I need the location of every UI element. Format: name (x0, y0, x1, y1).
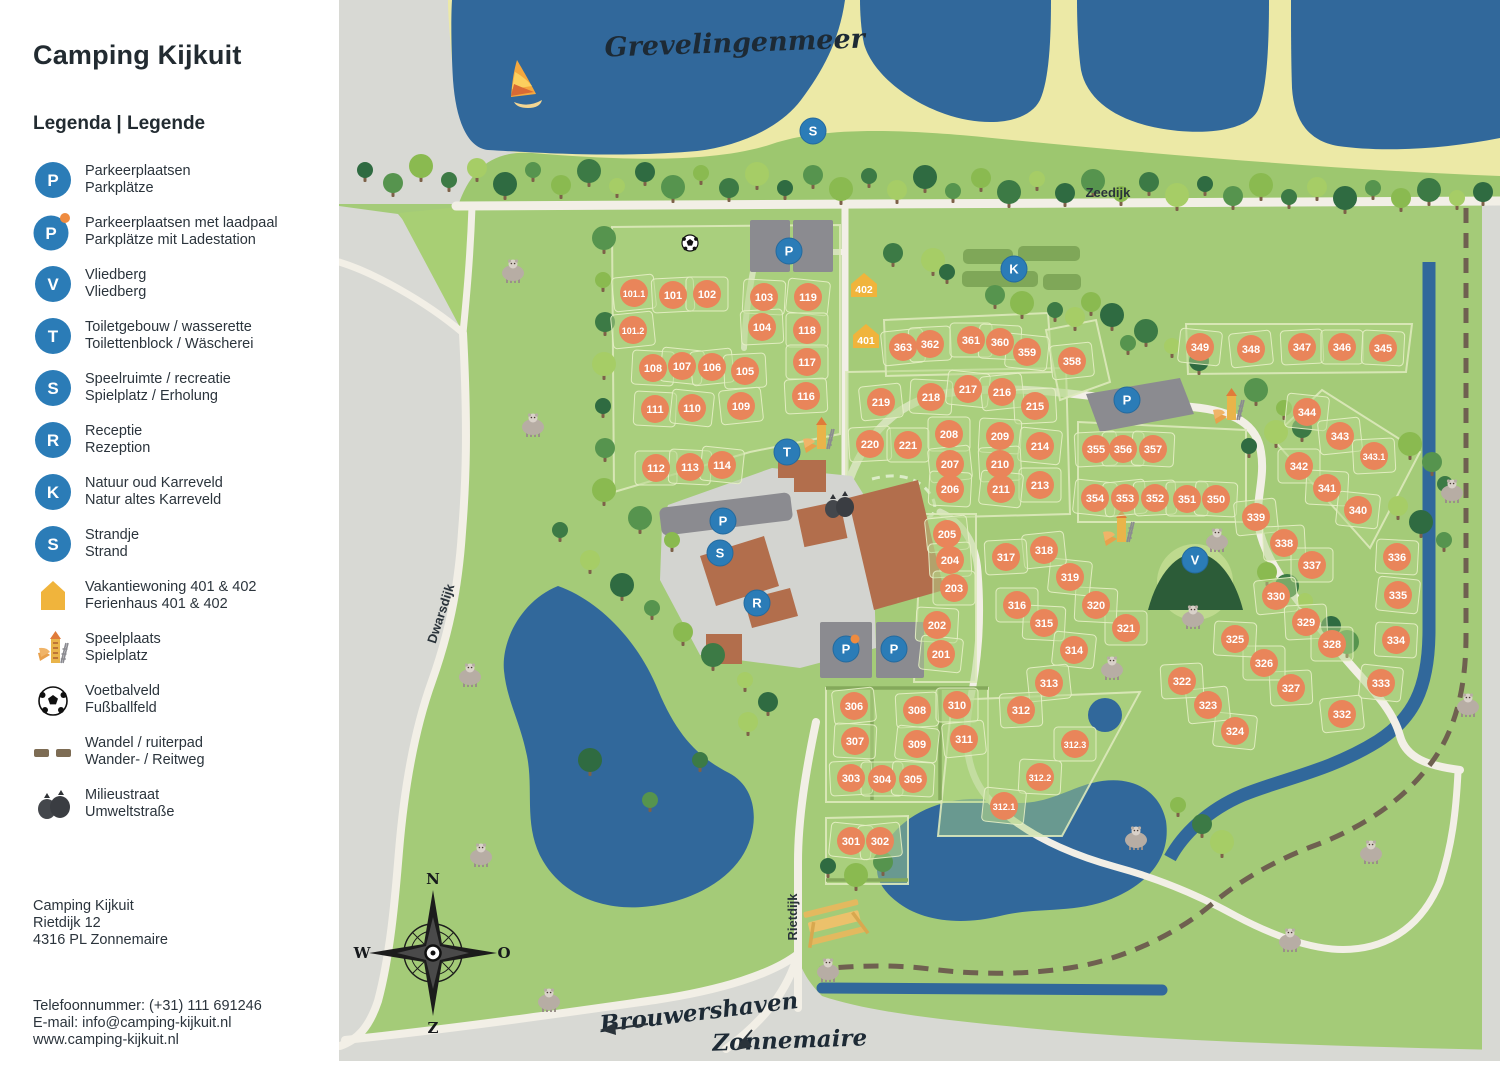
svg-text:321: 321 (1117, 623, 1135, 635)
legend-item-label: Toiletgebouw / wasseretteToilettenblock … (85, 319, 253, 351)
plot-marker-333[interactable]: 333 (1367, 669, 1395, 697)
plot-marker-334[interactable]: 334 (1382, 626, 1410, 654)
svg-text:353: 353 (1116, 493, 1134, 505)
plot-marker-343.1[interactable]: 343.1 (1360, 442, 1388, 470)
svg-text:R: R (752, 596, 762, 611)
plot-marker-338[interactable]: 338 (1270, 529, 1298, 557)
plot-marker-336[interactable]: 336 (1383, 543, 1411, 571)
svg-text:312.3: 312.3 (1064, 740, 1087, 750)
legend-item-label: Parkeerplaatsen met laadpaalParkplätze m… (85, 215, 278, 247)
plot-marker-102[interactable]: 102 (693, 280, 721, 308)
plot-marker-360[interactable]: 360 (986, 328, 1014, 356)
svg-text:S: S (716, 546, 725, 561)
svg-text:315: 315 (1035, 618, 1053, 630)
legend-list: PParkeerplaatsenParkplätzePParkeerplaats… (33, 161, 329, 822)
svg-text:308: 308 (908, 705, 926, 717)
plot-marker-116[interactable]: 116 (792, 382, 820, 410)
svg-text:111: 111 (646, 404, 663, 416)
parking-icon: P (33, 161, 73, 199)
svg-text:323: 323 (1199, 700, 1217, 712)
plot-marker-352[interactable]: 352 (1141, 484, 1169, 512)
svg-text:348: 348 (1242, 344, 1260, 356)
address-block: Camping Kijkuit Rietdijk 12 4316 PL Zonn… (33, 898, 329, 949)
svg-text:312.1: 312.1 (993, 802, 1016, 812)
plot-marker-107[interactable]: 107 (668, 352, 696, 380)
svg-text:206: 206 (941, 484, 959, 496)
badge-karreveld[interactable]: K (1001, 256, 1027, 282)
svg-text:104: 104 (753, 322, 772, 334)
svg-text:P: P (785, 244, 794, 259)
svg-text:312: 312 (1012, 705, 1030, 717)
svg-text:354: 354 (1086, 493, 1105, 505)
svg-text:102: 102 (698, 289, 716, 301)
legend-item-recreation: SSpeelruimte / recreatieSpielplatz / Erh… (33, 369, 329, 406)
page-title: Camping Kijkuit (33, 40, 329, 71)
plot-marker-348[interactable]: 348 (1237, 335, 1265, 363)
svg-text:303: 303 (842, 773, 860, 785)
svg-text:107: 107 (673, 361, 691, 373)
badge-vliedberg[interactable]: V (1182, 547, 1208, 573)
svg-text:103: 103 (755, 292, 773, 304)
plot-marker-302[interactable]: 302 (866, 827, 894, 855)
plot-marker-332[interactable]: 332 (1328, 700, 1356, 728)
beach-icon: S (33, 525, 73, 563)
svg-text:105: 105 (736, 366, 754, 378)
svg-text:343: 343 (1331, 431, 1349, 443)
plot-marker-221[interactable]: 221 (894, 431, 922, 459)
plot-marker-323[interactable]: 323 (1194, 691, 1222, 719)
svg-text:320: 320 (1087, 600, 1105, 612)
plot-marker-119[interactable]: 119 (794, 283, 822, 311)
svg-text:219: 219 (872, 397, 890, 409)
badge-toilets[interactable]: T (774, 439, 800, 465)
plot-marker-356[interactable]: 356 (1109, 435, 1137, 463)
legend-item-beach: SStrandjeStrand (33, 525, 329, 562)
compass-east: O (497, 944, 510, 962)
plot-marker-307[interactable]: 307 (841, 727, 869, 755)
svg-text:322: 322 (1173, 676, 1191, 688)
svg-text:359: 359 (1018, 347, 1036, 359)
plot-marker-342[interactable]: 342 (1285, 452, 1313, 480)
plot-marker-204[interactable]: 204 (936, 546, 964, 574)
address-line: Camping Kijkuit (33, 898, 329, 915)
svg-text:114: 114 (713, 460, 732, 472)
svg-text:P: P (842, 642, 851, 657)
plot-marker-201[interactable]: 201 (927, 640, 955, 668)
legend-item-bridle-path: Wandel / ruiterpadWander- / Reitweg (33, 733, 329, 770)
svg-text:318: 318 (1035, 545, 1053, 557)
address-line: 4316 PL Zonnemaire (33, 932, 329, 949)
plot-marker-113[interactable]: 113 (676, 453, 704, 481)
svg-text:343.1: 343.1 (1363, 452, 1386, 462)
soccer-ball-icon (682, 235, 698, 251)
plot-marker-335[interactable]: 335 (1384, 581, 1412, 609)
plot-marker-357[interactable]: 357 (1139, 435, 1167, 463)
svg-text:213: 213 (1031, 480, 1049, 492)
svg-text:210: 210 (991, 459, 1009, 471)
legend-item-toilets: TToiletgebouw / wasseretteToilettenblock… (33, 317, 329, 354)
plot-marker-306[interactable]: 306 (840, 692, 868, 720)
plot-marker-207[interactable]: 207 (936, 450, 964, 478)
svg-text:204: 204 (941, 555, 960, 567)
svg-text:355: 355 (1087, 444, 1105, 456)
svg-text:205: 205 (938, 529, 956, 541)
plot-marker-203[interactable]: 203 (940, 574, 968, 602)
svg-text:316: 316 (1008, 600, 1026, 612)
plot-marker-361[interactable]: 361 (957, 326, 985, 354)
legend-item-label: Speelruimte / recreatieSpielplatz / Erho… (85, 371, 231, 403)
plot-marker-304[interactable]: 304 (868, 765, 896, 793)
svg-text:363: 363 (894, 342, 912, 354)
svg-text:208: 208 (940, 429, 958, 441)
plot-marker-354[interactable]: 354 (1081, 484, 1109, 512)
plot-marker-101.1[interactable]: 101.1 (620, 279, 648, 307)
plot-marker-337[interactable]: 337 (1298, 551, 1326, 579)
plot-marker-209[interactable]: 209 (986, 422, 1014, 450)
plot-marker-205[interactable]: 205 (933, 520, 961, 548)
plot-marker-106[interactable]: 106 (698, 353, 726, 381)
svg-text:K: K (1009, 262, 1019, 277)
svg-text:311: 311 (955, 734, 973, 746)
plot-marker-101.2[interactable]: 101.2 (619, 316, 647, 344)
plot-marker-313[interactable]: 313 (1035, 669, 1063, 697)
svg-text:330: 330 (1267, 591, 1285, 603)
plot-marker-215[interactable]: 215 (1021, 392, 1049, 420)
plot-marker-312.3[interactable]: 312.3 (1061, 730, 1089, 758)
plot-marker-308[interactable]: 308 (903, 696, 931, 724)
plot-marker-314[interactable]: 314 (1060, 636, 1088, 664)
svg-text:207: 207 (941, 459, 959, 471)
legend-item-label: Wandel / ruiterpadWander- / Reitweg (85, 735, 205, 767)
plot-marker-206[interactable]: 206 (936, 475, 964, 503)
svg-text:117: 117 (798, 357, 816, 369)
svg-text:V: V (1191, 553, 1200, 568)
svg-text:357: 357 (1144, 444, 1162, 456)
svg-text:S: S (809, 124, 818, 139)
legend-item-parking-charging: PParkeerplaatsen met laadpaalParkplätze … (33, 213, 329, 250)
svg-text:221: 221 (899, 440, 917, 452)
plot-marker-305[interactable]: 305 (899, 765, 927, 793)
parking-charging-icon: P (33, 213, 73, 251)
plot-marker-344[interactable]: 344 (1293, 398, 1321, 426)
football-field-icon (33, 681, 73, 719)
plot-marker-213[interactable]: 213 (1026, 471, 1054, 499)
svg-text:356: 356 (1114, 444, 1132, 456)
legend-item-holiday-home: Vakantiewoning 401 & 402Ferienhaus 401 &… (33, 577, 329, 614)
svg-text:106: 106 (703, 362, 721, 374)
bridle-path-icon (33, 733, 73, 771)
karreveld-icon: K (33, 473, 73, 511)
legend-item-label: VoetbalveldFußballfeld (85, 683, 160, 715)
address-line: Rietdijk 12 (33, 915, 329, 932)
svg-text:339: 339 (1247, 512, 1265, 524)
svg-text:P: P (890, 642, 899, 657)
svg-text:110: 110 (683, 403, 701, 415)
plot-marker-353[interactable]: 353 (1111, 484, 1139, 512)
svg-text:346: 346 (1333, 342, 1351, 354)
plot-marker-108[interactable]: 108 (639, 354, 667, 382)
plot-marker-359[interactable]: 359 (1013, 338, 1041, 366)
svg-text:215: 215 (1026, 401, 1044, 413)
website-line: www.camping-kijkuit.nl (33, 1032, 329, 1049)
plot-marker-329[interactable]: 329 (1292, 608, 1320, 636)
legend-sidebar: Camping Kijkuit Legenda | Legende PParke… (0, 0, 339, 1061)
svg-text:R: R (47, 431, 59, 450)
plot-marker-325[interactable]: 325 (1221, 625, 1249, 653)
svg-text:306: 306 (845, 701, 863, 713)
recreation-icon: S (33, 369, 73, 407)
svg-text:101.1: 101.1 (623, 289, 646, 299)
svg-text:P: P (719, 514, 728, 529)
plot-marker-210[interactable]: 210 (986, 450, 1014, 478)
plot-marker-339[interactable]: 339 (1242, 503, 1270, 531)
plot-marker-349[interactable]: 349 (1186, 333, 1214, 361)
plot-marker-327[interactable]: 327 (1277, 674, 1305, 702)
svg-text:113: 113 (681, 462, 699, 474)
plot-marker-114[interactable]: 114 (708, 451, 736, 479)
plot-marker-109[interactable]: 109 (727, 392, 755, 420)
svg-text:337: 337 (1303, 560, 1321, 572)
svg-text:342: 342 (1290, 461, 1308, 473)
plot-marker-330[interactable]: 330 (1262, 582, 1290, 610)
legend-item-label: MilieustraatUmweltstraße (85, 787, 174, 819)
badge-parking-east[interactable]: P (1114, 387, 1140, 413)
svg-text:334: 334 (1387, 635, 1406, 647)
svg-text:218: 218 (922, 392, 940, 404)
plot-marker-324[interactable]: 324 (1221, 717, 1249, 745)
plot-marker-217[interactable]: 217 (954, 375, 982, 403)
plot-marker-208[interactable]: 208 (935, 420, 963, 448)
compass-west: W (353, 944, 372, 962)
legend-item-label: SpeelplaatsSpielplatz (85, 631, 161, 663)
legend-item-playground: SpeelplaatsSpielplatz (33, 629, 329, 666)
svg-text:119: 119 (799, 292, 817, 304)
camp-map: 101.1101102103119101.2104118108107106105… (339, 0, 1500, 1061)
plot-marker-321[interactable]: 321 (1112, 614, 1140, 642)
playground-icon (33, 629, 73, 667)
svg-text:341: 341 (1318, 483, 1336, 495)
label-zonnemaire: Zonnemaire (711, 1024, 868, 1056)
badge-parking-south[interactable]: P (881, 636, 907, 662)
plot-marker-315[interactable]: 315 (1030, 609, 1058, 637)
legend-item-football-field: VoetbalveldFußballfeld (33, 681, 329, 718)
svg-text:338: 338 (1275, 538, 1293, 550)
legend-item-label: Vakantiewoning 401 & 402Ferienhaus 401 &… (85, 579, 256, 611)
svg-text:317: 317 (997, 552, 1015, 564)
legend-item-label: VliedbergVliedberg (85, 267, 146, 299)
svg-text:P: P (45, 224, 56, 243)
svg-text:358: 358 (1063, 356, 1081, 368)
legend-title: Legenda | Legende (33, 113, 329, 135)
plot-marker-317[interactable]: 317 (992, 543, 1020, 571)
svg-text:325: 325 (1226, 634, 1244, 646)
plot-marker-351[interactable]: 351 (1173, 485, 1201, 513)
legend-item-reception: RReceptieRezeption (33, 421, 329, 458)
svg-text:209: 209 (991, 431, 1009, 443)
svg-text:333: 333 (1372, 678, 1390, 690)
plot-marker-312.1[interactable]: 312.1 (990, 792, 1018, 820)
svg-text:352: 352 (1146, 493, 1164, 505)
badge-parking-north[interactable]: P (776, 238, 802, 264)
svg-text:216: 216 (993, 387, 1011, 399)
plot-marker-355[interactable]: 355 (1082, 435, 1110, 463)
plot-marker-326[interactable]: 326 (1250, 649, 1278, 677)
legend-item-waste-street: MilieustraatUmweltstraße (33, 785, 329, 822)
holiday-home-icon (33, 577, 73, 615)
svg-text:101.2: 101.2 (622, 326, 645, 336)
plot-marker-101[interactable]: 101 (659, 281, 687, 309)
svg-text:326: 326 (1255, 658, 1273, 670)
plot-marker-316[interactable]: 316 (1003, 591, 1031, 619)
svg-text:S: S (47, 379, 58, 398)
svg-text:108: 108 (644, 363, 662, 375)
badge-beach[interactable]: S (800, 118, 826, 144)
svg-text:351: 351 (1178, 494, 1196, 506)
plot-marker-319[interactable]: 319 (1056, 563, 1084, 591)
plot-marker-117[interactable]: 117 (793, 348, 821, 376)
svg-text:203: 203 (945, 583, 963, 595)
label-zeedijk: Zeedijk (1086, 185, 1132, 200)
plot-marker-104[interactable]: 104 (748, 313, 776, 341)
vliedberg-icon: V (33, 265, 73, 303)
svg-text:P: P (1123, 393, 1132, 408)
svg-text:309: 309 (908, 739, 926, 751)
svg-text:360: 360 (991, 337, 1009, 349)
svg-text:310: 310 (948, 700, 966, 712)
plot-marker-220[interactable]: 220 (856, 430, 884, 458)
compass-north: N (426, 870, 440, 888)
badge-reception[interactable]: R (744, 590, 770, 616)
svg-text:402: 402 (855, 284, 873, 296)
legend-item-label: ParkeerplaatsenParkplätze (85, 163, 191, 195)
plot-marker-110[interactable]: 110 (678, 394, 706, 422)
svg-text:362: 362 (921, 339, 939, 351)
plot-marker-219[interactable]: 219 (867, 388, 895, 416)
plot-marker-362[interactable]: 362 (916, 330, 944, 358)
svg-text:116: 116 (797, 391, 815, 403)
badge-parking-plaza[interactable]: P (710, 508, 736, 534)
plot-marker-343[interactable]: 343 (1326, 422, 1354, 450)
reception-icon: R (33, 421, 73, 459)
plot-marker-211[interactable]: 211 (987, 475, 1015, 503)
svg-text:314: 314 (1065, 645, 1084, 657)
waste-street-icon (33, 785, 73, 823)
svg-text:328: 328 (1323, 639, 1341, 651)
svg-text:332: 332 (1333, 709, 1351, 721)
svg-text:214: 214 (1031, 441, 1050, 453)
svg-text:101: 101 (664, 290, 682, 302)
svg-text:344: 344 (1298, 407, 1317, 419)
svg-text:302: 302 (871, 836, 889, 848)
svg-text:202: 202 (928, 620, 946, 632)
svg-text:301: 301 (842, 836, 860, 848)
svg-text:335: 335 (1389, 590, 1407, 602)
svg-text:327: 327 (1282, 683, 1300, 695)
plot-marker-341[interactable]: 341 (1313, 474, 1341, 502)
plot-marker-312[interactable]: 312 (1007, 696, 1035, 724)
plot-marker-103[interactable]: 103 (750, 283, 778, 311)
svg-text:T: T (783, 445, 791, 460)
plot-marker-216[interactable]: 216 (988, 378, 1016, 406)
plot-marker-111[interactable]: 111 (641, 395, 669, 423)
plot-marker-310[interactable]: 310 (943, 691, 971, 719)
svg-text:312.2: 312.2 (1029, 773, 1052, 783)
plot-marker-218[interactable]: 218 (917, 383, 945, 411)
svg-text:304: 304 (873, 774, 892, 786)
plot-marker-358[interactable]: 358 (1058, 347, 1086, 375)
plot-marker-328[interactable]: 328 (1318, 630, 1346, 658)
plot-marker-347[interactable]: 347 (1288, 333, 1316, 361)
svg-text:211: 211 (992, 484, 1010, 496)
svg-text:347: 347 (1293, 342, 1311, 354)
plot-marker-309[interactable]: 309 (903, 730, 931, 758)
svg-text:201: 201 (932, 649, 950, 661)
legend-item-parking: PParkeerplaatsenParkplätze (33, 161, 329, 198)
svg-text:361: 361 (962, 335, 980, 347)
email-line: E-mail: info@camping-kijkuit.nl (33, 1015, 329, 1032)
plot-marker-301[interactable]: 301 (837, 827, 865, 855)
plot-marker-318[interactable]: 318 (1030, 536, 1058, 564)
svg-text:350: 350 (1207, 494, 1225, 506)
svg-text:S: S (47, 535, 58, 554)
plot-marker-322[interactable]: 322 (1168, 667, 1196, 695)
svg-text:P: P (47, 171, 58, 190)
toilets-icon: T (33, 317, 73, 355)
plot-marker-345[interactable]: 345 (1369, 334, 1397, 362)
plot-marker-350[interactable]: 350 (1202, 485, 1230, 513)
plot-marker-340[interactable]: 340 (1344, 496, 1372, 524)
svg-text:109: 109 (732, 401, 750, 413)
plot-marker-363[interactable]: 363 (889, 333, 917, 361)
svg-text:T: T (48, 327, 59, 346)
plot-marker-312.2[interactable]: 312.2 (1026, 763, 1054, 791)
svg-text:336: 336 (1388, 552, 1406, 564)
plot-marker-202[interactable]: 202 (923, 611, 951, 639)
label-rietdijk: Rietdijk (785, 893, 800, 941)
plot-marker-320[interactable]: 320 (1082, 591, 1110, 619)
plot-marker-105[interactable]: 105 (731, 357, 759, 385)
svg-text:401: 401 (857, 335, 875, 347)
svg-text:319: 319 (1061, 572, 1079, 584)
svg-text:K: K (47, 483, 60, 502)
svg-text:313: 313 (1040, 678, 1058, 690)
svg-text:118: 118 (798, 325, 816, 337)
legend-item-vliedberg: VVliedbergVliedberg (33, 265, 329, 302)
legend-item-label: ReceptieRezeption (85, 423, 150, 455)
plot-marker-303[interactable]: 303 (837, 764, 865, 792)
svg-text:349: 349 (1191, 342, 1209, 354)
plot-marker-112[interactable]: 112 (642, 454, 670, 482)
legend-item-label: StrandjeStrand (85, 527, 139, 559)
compass-south: Z (428, 1019, 439, 1037)
svg-text:329: 329 (1297, 617, 1315, 629)
svg-text:112: 112 (647, 463, 665, 475)
phone-line: Telefoonnummer: (+31) 111 691246 (33, 998, 329, 1015)
svg-text:340: 340 (1349, 505, 1367, 517)
plot-marker-346[interactable]: 346 (1328, 333, 1356, 361)
plot-marker-214[interactable]: 214 (1026, 432, 1054, 460)
svg-text:220: 220 (861, 439, 879, 451)
badge-recreation[interactable]: S (707, 540, 733, 566)
svg-text:307: 307 (846, 736, 864, 748)
legend-item-label: Natuur oud KarreveldNatur altes Karrevel… (85, 475, 223, 507)
svg-text:V: V (47, 275, 59, 294)
plot-marker-118[interactable]: 118 (793, 316, 821, 344)
plot-marker-311[interactable]: 311 (950, 725, 978, 753)
svg-text:305: 305 (904, 774, 922, 786)
legend-item-karreveld: KNatuur oud KarreveldNatur altes Karreve… (33, 473, 329, 510)
contact-block: Telefoonnummer: (+31) 111 691246 E-mail:… (33, 998, 329, 1049)
